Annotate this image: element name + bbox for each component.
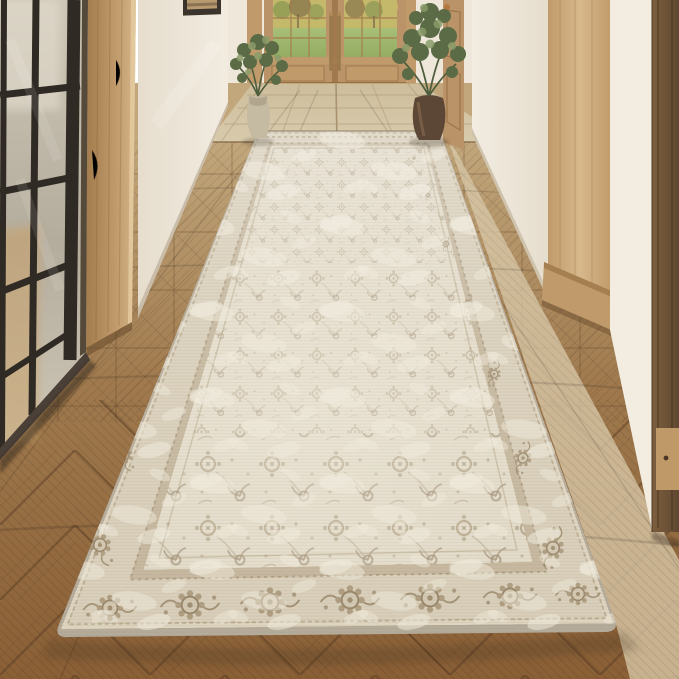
door-glass-left <box>273 0 326 57</box>
oak-post <box>86 0 136 356</box>
french-doors <box>264 0 406 85</box>
picture-frame <box>183 0 221 16</box>
right-plant-pot <box>413 95 446 140</box>
oak-pillar <box>542 0 616 338</box>
walnut-frame <box>652 0 679 548</box>
scene-canvas <box>0 0 679 679</box>
outdoor-lawn <box>344 28 397 57</box>
hallway-rug-photo <box>0 0 679 679</box>
drawer-knob <box>664 456 669 461</box>
door-glass-right <box>344 0 398 57</box>
outdoor-lawn <box>273 28 326 57</box>
